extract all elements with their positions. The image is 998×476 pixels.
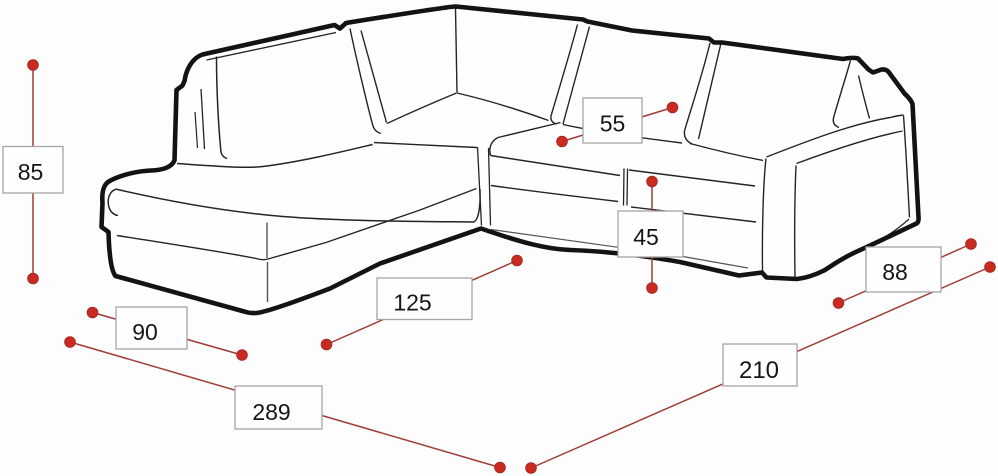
svg-text:210: 210: [739, 357, 779, 384]
svg-text:88: 88: [882, 259, 908, 285]
svg-text:55: 55: [600, 111, 626, 137]
svg-text:125: 125: [393, 290, 431, 316]
svg-text:85: 85: [18, 159, 44, 185]
svg-text:45: 45: [633, 224, 659, 250]
svg-text:289: 289: [252, 399, 290, 425]
svg-text:90: 90: [132, 319, 158, 345]
